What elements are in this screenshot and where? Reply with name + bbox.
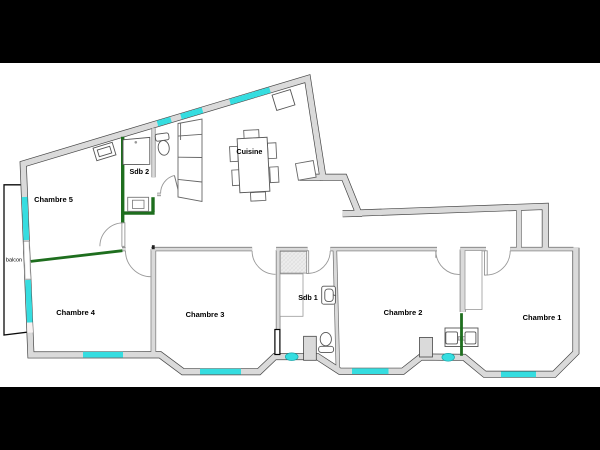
svg-text:Sdb 2: Sdb 2 (130, 167, 150, 176)
svg-text:Chambre 1: Chambre 1 (523, 313, 562, 322)
svg-text:balcon: balcon (6, 258, 22, 264)
svg-text:Cuisine: Cuisine (236, 147, 262, 156)
svg-text:Chambre 3: Chambre 3 (186, 310, 225, 319)
svg-text:Sdb 1: Sdb 1 (298, 293, 318, 302)
svg-text:Chambre 4: Chambre 4 (56, 308, 96, 317)
svg-text:Chambre 5: Chambre 5 (34, 195, 73, 204)
svg-text:Chambre 2: Chambre 2 (384, 308, 423, 317)
